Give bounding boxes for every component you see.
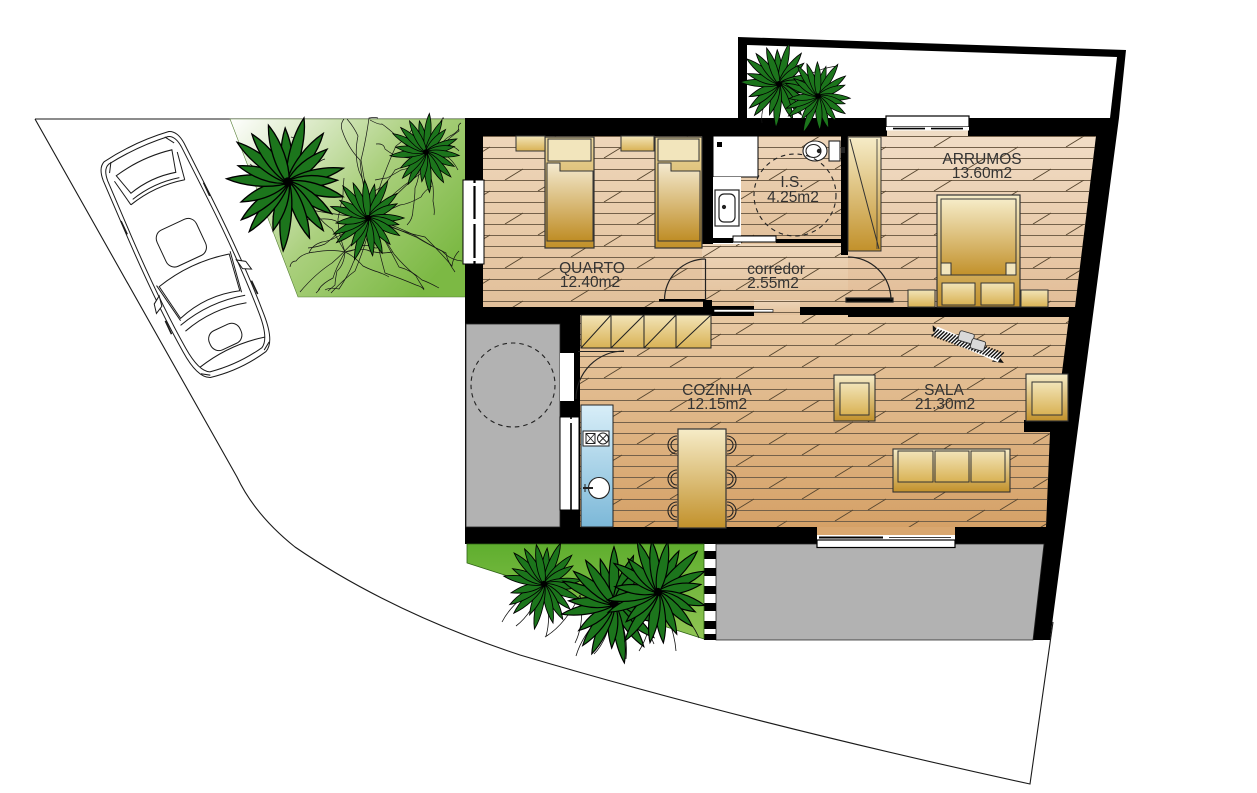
svg-text:21.30m2: 21.30m2 xyxy=(915,396,975,413)
svg-text:13.60m2: 13.60m2 xyxy=(952,165,1012,182)
svg-text:4.25m2: 4.25m2 xyxy=(767,189,819,206)
svg-text:12.15m2: 12.15m2 xyxy=(687,396,747,413)
svg-text:12.40m2: 12.40m2 xyxy=(560,274,620,291)
svg-text:2.55m2: 2.55m2 xyxy=(747,275,799,292)
